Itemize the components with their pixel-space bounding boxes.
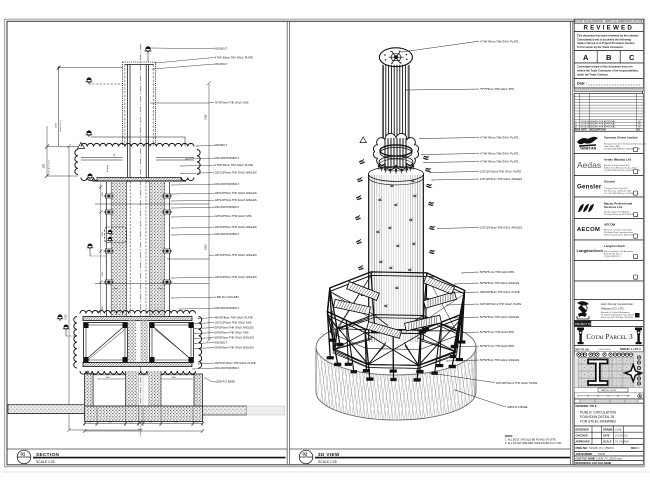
svg-text:KEY PLAN: KEY PLAN (576, 348, 589, 352)
svg-text:M10 ANCHOR BOLT: M10 ANCHOR BOLT (215, 205, 240, 209)
svg-text:AECOM: AECOM (577, 227, 600, 233)
svg-text:75*75*6mm THK GALV. SHS: 75*75*6mm THK GALV. SHS (480, 87, 514, 91)
svg-text:o 800 R.C COLUMN: o 800 R.C COLUMN (215, 295, 239, 299)
svg-text:100*100*10mm THK GALV. PLATE: 100*100*10mm THK GALV. PLATE (215, 361, 256, 365)
svg-text:JOB NUMBER: JOB NUMBER (576, 453, 593, 456)
svg-text:o2500 R.C BASE: o2500 R.C BASE (507, 405, 528, 409)
svg-text:120*120*6mm THK GALV. SHS: 120*120*6mm THK GALV. SHS (215, 321, 252, 325)
svg-text:DRAWN: DRAWN (603, 429, 613, 432)
svg-text:CHECKED: CHECKED (576, 435, 589, 438)
svg-text:50*50*5 mm THK GALV.SHS: 50*50*5 mm THK GALV.SHS (480, 330, 514, 334)
svg-text:50*50*5mm THK GALV. ANGLES: 50*50*5mm THK GALV. ANGLES (480, 281, 519, 285)
svg-text:120*120*10mm THK GALV. PLATE: 120*120*10mm THK GALV. PLATE (480, 170, 521, 174)
svg-text:DRAWING TITLE: DRAWING TITLE (576, 404, 597, 408)
svg-text:120*120*6mm THK GALV. SHS: 120*120*6mm THK GALV. SHS (215, 214, 252, 218)
svg-text:PARCEL 3 SITE: PARCEL 3 SITE (601, 389, 617, 392)
svg-text:22/10/15: 22/10/15 (581, 121, 590, 123)
svg-text:(Typ.): (Typ.) (113, 288, 118, 290)
svg-text:Gensler: Gensler (577, 184, 602, 191)
svg-text:B: B (606, 53, 612, 62)
svg-text:5152B_PC_85050: 5152B_PC_85050 (589, 446, 614, 450)
svg-text:M10 BOLT: M10 BOLT (215, 341, 228, 345)
svg-text:2894: 2894 (138, 429, 144, 431)
svg-text:M10 BOLT: M10 BOLT (215, 143, 228, 147)
svg-text:Gensler: Gensler (604, 180, 616, 184)
svg-text:120*120*6mm THK GALV. ANGLES: 120*120*6mm THK GALV. ANGLES (215, 171, 257, 175)
svg-text:under the Trade Contract.: under the Trade Contract. (577, 72, 609, 76)
svg-text:14/10/2015: 14/10/2015 (615, 435, 628, 438)
svg-text:120*120*6mm THK GALV. ANGLES: 120*120*6mm THK GALV. ANGLES (215, 253, 257, 257)
svg-text:4 THK 90mm THK GALV. PLATE: 4 THK 90mm THK GALV. PLATE (480, 136, 519, 140)
svg-text:A: A (583, 53, 589, 62)
svg-text:4 THK 90mm THK GALV. PLATE: 4 THK 90mm THK GALV. PLATE (480, 40, 519, 44)
svg-text:ISSUED FOR APPROVAL: ISSUED FOR APPROVAL (590, 120, 616, 123)
svg-text:50*50*6mm THK GALV. ANGLES: 50*50*6mm THK GALV. ANGLES (215, 346, 254, 350)
svg-text:PARCEL 1, LOT 2: PARCEL 1, LOT 2 (620, 348, 641, 351)
svg-text:12 andar, Macau Tel: (853) 2: 12 andar, Macau Tel: (853) 2878 6281 (604, 213, 636, 216)
svg-text:DATE: DATE (603, 435, 610, 438)
svg-text:120*120*6mm THK GALV. ANGLES: 120*120*6mm THK GALV. ANGLES (215, 275, 257, 279)
svg-text:Shatin, Hong Kong Tel: (852): Shatin, Hong Kong Tel: (852) 3922 9000 (604, 234, 638, 237)
svg-text:HC: HC (638, 124, 642, 126)
svg-text:(Typ.): (Typ.) (158, 288, 163, 290)
svg-text:1750: 1750 (56, 122, 58, 128)
svg-text:3D VIEW: 3D VIEW (318, 452, 340, 457)
svg-text:PUBLIC CIRCULATION: PUBLIC CIRCULATION (580, 411, 616, 415)
svg-text:AS SHOWN: AS SHOWN (615, 441, 629, 444)
svg-text:C: C (629, 53, 635, 62)
svg-text:120*120*6mm THK GALV. ANGLES: 120*120*6mm THK GALV. ANGLES (215, 225, 257, 229)
svg-text:REFERENCE CAD FILE NAME: REFERENCE CAD FILE NAME (576, 462, 612, 465)
svg-text:Date :: Date : (577, 82, 587, 86)
svg-text:Aedas: Aedas (577, 160, 601, 170)
svg-text:500: 500 (43, 163, 46, 168)
svg-text:HC: HC (638, 127, 642, 129)
svg-text:4 THK 90mm THK GALV. PLATE: 4 THK 90mm THK GALV. PLATE (215, 56, 254, 60)
svg-text:VENETIAN: VENETIAN (580, 147, 597, 151)
svg-text:450*90*8mm THK GALV. PLATE: 450*90*8mm THK GALV. PLATE (215, 316, 253, 320)
svg-text:DWG NO: DWG NO (576, 446, 589, 450)
svg-text:12/10/15: 12/10/15 (581, 124, 590, 126)
svg-text:5.4 for action by the Trade Co: 5.4 for action by the Trade Contractor. (577, 45, 624, 49)
svg-text:450*200*8mm THK GALV. PLATE: 450*200*8mm THK GALV. PLATE (480, 290, 520, 294)
svg-text:50*50*5mm THK GALV. ANGLES: 50*50*5mm THK GALV. ANGLES (480, 315, 519, 319)
svg-text:ISSUED FOR APPROVAL: ISSUED FOR APPROVAL (590, 126, 616, 129)
svg-text:LangdonSeah: LangdonSeah (577, 248, 604, 253)
svg-text:status referred to in Project: status referred to in Project Procedure … (577, 41, 635, 45)
svg-text:REVIEWED: REVIEWED (583, 25, 634, 32)
svg-text:4 THK 90mm THK GALV. PLATE: 4 THK 90mm THK GALV. PLATE (480, 160, 519, 164)
svg-text:M10 BOLT: M10 BOLT (215, 62, 228, 66)
svg-text:Services Ltd.: Services Ltd. (604, 205, 623, 209)
svg-text:50*50*6mm THK GALV. ANGLES: 50*50*6mm THK GALV. ANGLES (215, 326, 254, 330)
svg-text:SCALE 1:25: SCALE 1:25 (318, 460, 337, 464)
svg-text:Consultant(s) and is accorded: Consultant(s) and is accorded the follow… (577, 37, 631, 41)
svg-text:FOUNTAIN DETAIL 25: FOUNTAIN DETAIL 25 (580, 415, 614, 419)
svg-text:1788: 1788 (205, 114, 208, 120)
svg-text:50*50*6mm THK GALV. SHS: 50*50*6mm THK GALV. SHS (215, 331, 249, 335)
svg-text:DESIGNED: DESIGNED (576, 429, 589, 432)
svg-text:50*50*5mm THK GALV. ANGLES: 50*50*5mm THK GALV. ANGLES (480, 358, 519, 362)
svg-text:DO NOT SCALE DRAWING. VERIFY A: DO NOT SCALE DRAWING. VERIFY ALL DIMENSI… (575, 20, 644, 23)
svg-text:05/10/15: 05/10/15 (581, 127, 590, 129)
svg-text:100*100*10mm THK GALV. PLATE: 100*100*10mm THK GALV. PLATE (480, 302, 521, 306)
svg-text:Langdon Seah: Langdon Seah (604, 244, 625, 248)
svg-text:relieve the Trade Contractor: relieve the Trade Contractor of its resp… (577, 69, 639, 73)
svg-text:SCALE 1:25: SCALE 1:25 (36, 460, 55, 464)
svg-text:SECTION: SECTION (36, 452, 60, 457)
svg-text:HC: HC (638, 121, 642, 123)
svg-text:M10 ANCHOR BOLT: M10 ANCHOR BOLT (215, 366, 240, 370)
svg-text:REV C: REV C (631, 446, 640, 450)
svg-text:4 THK 90mm THK GALV. PLATE: 4 THK 90mm THK GALV. PLATE (215, 163, 254, 167)
svg-text:APPROVED: APPROVED (576, 441, 590, 444)
svg-text:50*50*5 mm THK GALV.SHS: 50*50*5 mm THK GALV.SHS (480, 344, 514, 348)
svg-text:M10 ANCHOR BOLT: M10 ANCHOR BOLT (215, 306, 240, 310)
svg-text:2. ALL FILLET WELDED SHOULD BE: 2. ALL FILLET WELDED SHOULD BE 6mm THK. (505, 441, 562, 445)
svg-text:120*120*6mm THK GALV. ANGLES: 120*120*6mm THK GALV. ANGLES (480, 177, 522, 181)
svg-text:(verify on site): (verify on site) (59, 120, 62, 132)
svg-text:FOR STEEL DRAWING: FOR STEEL DRAWING (580, 420, 616, 424)
svg-text:120*120*6mm THK GALV. ANGLES: 120*120*6mm THK GALV. ANGLES (215, 191, 257, 195)
svg-text:M10 BOLT: M10 BOLT (215, 47, 228, 51)
svg-text:M10 ANCHOR BOLT: M10 ANCHOR BOLT (215, 232, 240, 236)
svg-text:(verify on site): (verify on site) (48, 160, 51, 173)
svg-text:ISSUED FOR APPROVAL: ISSUED FOR APPROVAL (590, 123, 616, 126)
svg-text:Macau Tel: 2870 3913 Fax: 28: Macau Tel: 2870 3913 Fax: 2870 3919 (601, 317, 633, 319)
svg-text:01: 01 (21, 452, 26, 457)
svg-text:75*75*6mm THK GALV. SHS: 75*75*6mm THK GALV. SHS (215, 101, 249, 105)
svg-text:AECOM: AECOM (604, 223, 616, 227)
svg-text:M10 ANCHOR BOLT: M10 ANCHOR BOLT (215, 156, 240, 160)
svg-text:M10 ANCHOR BOLT: M10 ANCHOR BOLT (215, 182, 240, 186)
svg-text:120*120*6mm THK GALV. ANGLES: 120*120*6mm THK GALV. ANGLES (480, 226, 522, 230)
svg-text:2500: 2500 (205, 244, 208, 250)
svg-text:02: 02 (303, 452, 308, 457)
svg-text:1. ALL BOLT SHOULD BE FIXING O: 1. ALL BOLT SHOULD BE FIXING ON SITE. (505, 438, 557, 442)
svg-text:This document has been reviewe: This document has been reviewed by the r… (577, 33, 638, 37)
svg-text:100*100*10mm THK GALV. PLATE: 100*100*10mm THK GALV. PLATE (496, 381, 537, 385)
svg-text:o2500 R.C BASE: o2500 R.C BASE (215, 380, 236, 384)
svg-text:PROJECT TITLE: PROJECT TITLE (575, 322, 595, 326)
svg-text:120*120*6mm THK GALV. ANGLES: 120*120*6mm THK GALV. ANGLES (215, 198, 257, 202)
svg-text:Venetian Orient Limited: Venetian Orient Limited (604, 136, 638, 140)
svg-text:50*50*5 mm THK GALV.SHS: 50*50*5 mm THK GALV.SHS (480, 270, 514, 274)
svg-text:1750: 1750 (65, 314, 68, 320)
svg-text:4 THK 90mm THK GALV. PLATE: 4 THK 90mm THK GALV. PLATE (480, 152, 519, 156)
svg-text:NOTE:: NOTE: (505, 434, 513, 438)
svg-text:SCALE: SCALE (603, 441, 612, 444)
svg-text:LUND: LUND (615, 429, 622, 432)
svg-text:40 deg: 40 deg (107, 165, 109, 172)
svg-text:5152B: 5152B (598, 453, 606, 456)
svg-text:Hsin Chong Construction: Hsin Chong Construction (601, 302, 634, 306)
svg-text:Aedas (Macau) Ltd.: Aedas (Macau) Ltd. (604, 158, 632, 162)
svg-text:T (853) 2833 1710: T (853) 2833 1710 (604, 256, 620, 258)
svg-text:Consultant review of this: Consultant review of this document does … (577, 65, 633, 69)
svg-text:(Macau) CO. LTD.: (Macau) CO. LTD. (601, 307, 625, 311)
svg-text:50*50*6mm THK GALV. ANGLES: 50*50*6mm THK GALV. ANGLES (215, 336, 254, 340)
svg-text:0 10 20 40 m: 0 10 20 40 m (598, 349, 611, 351)
